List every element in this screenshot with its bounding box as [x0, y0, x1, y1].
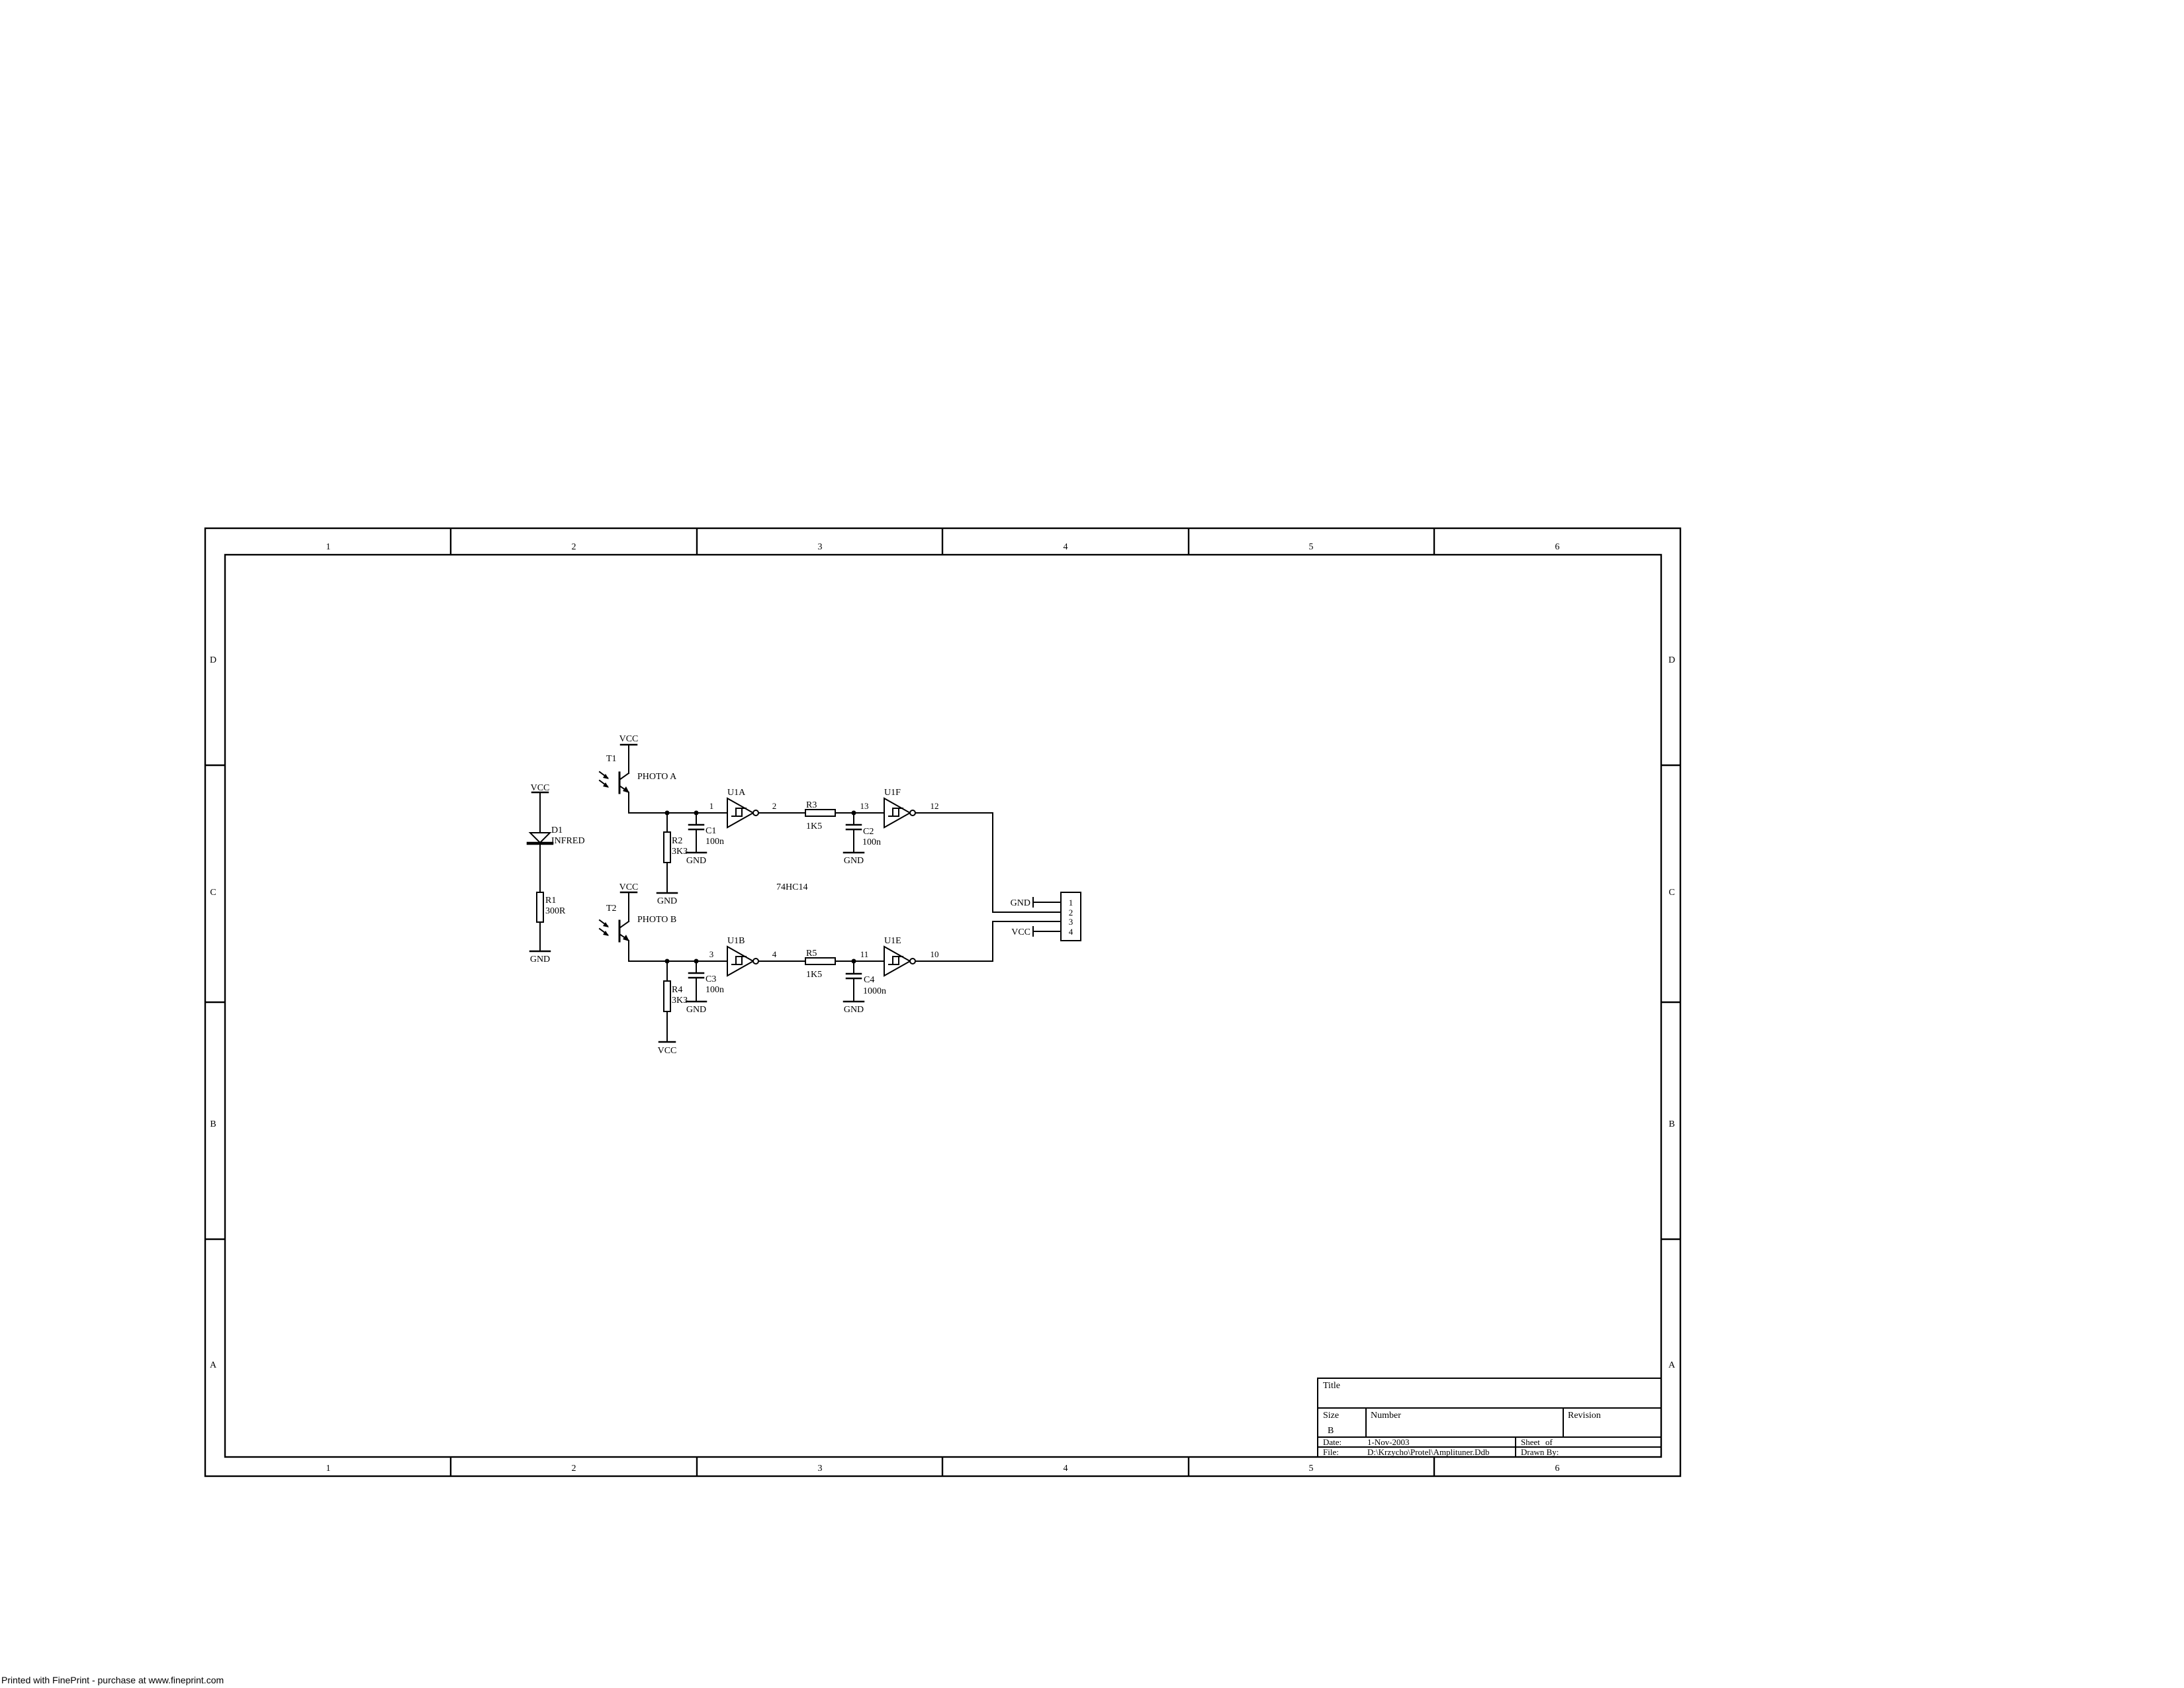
fineprint-watermark: Printed with FinePrint - purchase at www… [1, 1675, 224, 1685]
capacitor-c4: GND C4 1000n [844, 961, 886, 1015]
transistor-collector [619, 773, 629, 780]
capacitor-c2: GND C2 100n [844, 813, 881, 866]
inverter-triangle [884, 947, 910, 976]
gnd-port-label: GND [657, 896, 677, 906]
gnd-port-label: GND [1011, 898, 1030, 908]
c3-ref-label: C3 [705, 974, 716, 984]
column-label-bottom: 4 [1064, 1464, 1068, 1474]
gnd-port-connector: GND [1011, 898, 1033, 908]
inverter-triangle [884, 798, 910, 827]
u1a-pin-in-number: 1 [709, 801, 714, 811]
schematic-canvas: 1 2 3 4 5 6 1 2 3 4 5 6 D C B A D C B A … [0, 0, 2184, 1688]
photo-arrows-t1 [600, 772, 609, 788]
row-label-left: A [210, 1360, 217, 1370]
diode-d1: D1 INFRED [528, 825, 585, 846]
schmitt-hysteresis-icon [732, 808, 746, 816]
gnd-port-label: GND [844, 1005, 864, 1015]
u1b-pin-in-number: 3 [709, 949, 714, 959]
resistor-r1: R1 300R [537, 892, 566, 922]
inverter-u1a: U1A [727, 788, 758, 827]
column-label-bottom: 6 [1555, 1464, 1560, 1474]
d1-value-label: INFRED [551, 836, 585, 846]
connector-pin-number: 3 [1069, 917, 1073, 927]
resistor-body [664, 981, 670, 1011]
photo-arrows-t2 [600, 920, 609, 936]
printed-schematic-page: 1 2 3 4 5 6 1 2 3 4 5 6 D C B A D C B A … [0, 0, 2184, 1688]
row-label-right: A [1668, 1360, 1676, 1370]
capacitor-c1: GND C1 100n [686, 813, 724, 866]
capacitor-c3: GND C3 100n [686, 961, 724, 1015]
r5-ref-label: R5 [806, 949, 817, 959]
d1-ref-label: D1 [551, 825, 563, 835]
r1-ref-label: R1 [545, 896, 556, 906]
gnd-port-label: GND [686, 856, 706, 866]
vcc-port-label: VCC [619, 882, 639, 892]
u1a-ref-label: U1A [727, 788, 746, 798]
c1-ref-label: C1 [705, 826, 716, 836]
u1b-pin-out-number: 4 [772, 949, 777, 959]
revision-label: Revision [1568, 1411, 1601, 1421]
inverter-u1e: U1E [884, 936, 915, 976]
vcc-port-d1: VCC [531, 783, 550, 793]
inverter-bubble [753, 810, 758, 816]
column-label-bottom: 5 [1309, 1464, 1314, 1474]
u1e-ref-label: U1E [884, 936, 901, 946]
transistor-collector [619, 921, 629, 928]
resistor-r2: R2 3K3 GND [657, 813, 688, 906]
row-label-left: C [210, 888, 216, 898]
ir-led-branch: VCC D1 INFRED R1 300R GND [528, 783, 585, 964]
column-label-top: 4 [1064, 542, 1068, 552]
c2-ref-label: C2 [863, 827, 874, 837]
t2-ref-label: T2 [606, 904, 617, 914]
inverter-u1b: U1B [727, 936, 758, 976]
schmitt-hysteresis-icon [889, 808, 903, 816]
resistor-body [664, 832, 670, 863]
column-label-top: 1 [326, 542, 331, 552]
title-block: Title Size B Number Revision Date: 1-Nov… [1318, 1378, 1661, 1457]
t1-ref-label: T1 [606, 754, 617, 764]
date-label: Date: [1323, 1437, 1342, 1447]
r3-ref-label: R3 [806, 800, 817, 810]
vcc-port-label: VCC [619, 734, 639, 744]
c2-value-label: 100n [862, 837, 881, 847]
column-label-top: 3 [818, 542, 823, 552]
frame-outer-border [205, 528, 1680, 1476]
schmitt-hysteresis-icon [732, 957, 746, 964]
schmitt-hysteresis-icon [889, 957, 903, 964]
sheet-label: Sheet [1521, 1437, 1540, 1447]
r5-value-label: 1K5 [806, 970, 822, 980]
row-label-left: B [210, 1119, 216, 1129]
u1f-pin-in-number: 13 [860, 801, 869, 811]
diode-body [530, 833, 550, 843]
vcc-port-label: VCC [658, 1046, 677, 1056]
channel-a: 1 R2 3K3 GND GND C1 100n U1A 2 [629, 788, 993, 912]
vcc-port-connector: VCC [1011, 927, 1033, 937]
u1f-ref-label: U1F [884, 788, 901, 798]
phototransistor-t2: VCC T2 PHOTO B [600, 882, 676, 961]
title-label: Title [1323, 1381, 1340, 1391]
gnd-port-label: GND [530, 955, 550, 964]
r3-value-label: 1K5 [806, 821, 822, 831]
row-label-left: D [210, 655, 216, 665]
inverter-bubble [753, 959, 758, 964]
connector-pin-number: 2 [1069, 908, 1073, 917]
phototransistor-t1: VCC T1 PHOTO A [600, 734, 677, 813]
u1e-pin-in-number: 11 [860, 949, 869, 959]
u1f-pin-out-number: 12 [931, 801, 939, 811]
frame-inner-border [225, 555, 1661, 1457]
row-label-right: C [1668, 888, 1674, 898]
r1-value-label: 300R [545, 906, 566, 916]
r4-value-label: 3K3 [672, 996, 688, 1006]
file-value: D:\Krzycho\Protel\Amplituner.Ddb [1367, 1447, 1490, 1457]
number-label: Number [1371, 1411, 1401, 1421]
c3-value-label: 100n [705, 985, 724, 995]
gnd-port-r1: GND [530, 951, 550, 964]
size-value: B [1328, 1426, 1334, 1436]
column-label-bottom: 3 [818, 1464, 823, 1474]
u1a-pin-out-number: 2 [772, 801, 777, 811]
row-label-right: B [1668, 1119, 1674, 1129]
ic-name-label: 74HC14 [776, 882, 807, 892]
vcc-port-label: VCC [1011, 927, 1030, 937]
inverter-bubble [910, 810, 915, 816]
size-label: Size [1323, 1411, 1339, 1421]
r2-value-label: 3K3 [672, 847, 688, 857]
sheet-of-label: of [1545, 1437, 1553, 1447]
resistor-r4: R4 3K3 VCC [658, 961, 688, 1056]
resistor-body [805, 810, 835, 816]
column-label-bottom: 2 [572, 1464, 576, 1474]
u1e-pin-out-number: 10 [931, 949, 939, 959]
column-label-top: 5 [1309, 542, 1314, 552]
file-label: File: [1323, 1447, 1339, 1457]
c4-ref-label: C4 [864, 975, 874, 985]
date-value: 1-Nov-2003 [1367, 1437, 1410, 1447]
resistor-body [805, 958, 835, 964]
column-label-top: 6 [1555, 542, 1560, 552]
c1-value-label: 100n [705, 837, 724, 847]
column-label-bottom: 1 [326, 1464, 331, 1474]
vcc-port-t1: VCC [619, 734, 639, 745]
vcc-port-t2: VCC [619, 882, 639, 892]
u1b-ref-label: U1B [727, 936, 745, 946]
output-connector: 1 2 3 4 GND VCC [993, 892, 1081, 941]
r2-ref-label: R2 [672, 836, 682, 846]
connector-pin-number: 4 [1069, 927, 1073, 937]
resistor-r3: R3 1K5 [805, 800, 835, 831]
gnd-port-label: GND [686, 1005, 706, 1015]
sheet-frame: 1 2 3 4 5 6 1 2 3 4 5 6 D C B A D C B A [205, 528, 1680, 1476]
channel-b: 3 R4 3K3 VCC GND C3 100n U1B 4 [629, 921, 993, 1056]
inverter-bubble [910, 959, 915, 964]
resistor-r5: R5 1K5 [805, 949, 835, 980]
gnd-port-label: GND [844, 856, 864, 866]
column-label-top: 2 [572, 542, 576, 552]
inverter-triangle [727, 798, 753, 827]
c4-value-label: 1000n [863, 986, 886, 996]
row-label-right: D [1668, 655, 1675, 665]
inverter-triangle [727, 947, 753, 976]
inverter-u1f: U1F [884, 788, 915, 827]
t1-value-label: PHOTO A [637, 772, 677, 782]
drawn-by-label: Drawn By: [1521, 1447, 1559, 1457]
r4-ref-label: R4 [672, 985, 682, 995]
connector-pin-number: 1 [1069, 898, 1073, 908]
resistor-body [537, 892, 543, 922]
t2-value-label: PHOTO B [637, 915, 676, 925]
